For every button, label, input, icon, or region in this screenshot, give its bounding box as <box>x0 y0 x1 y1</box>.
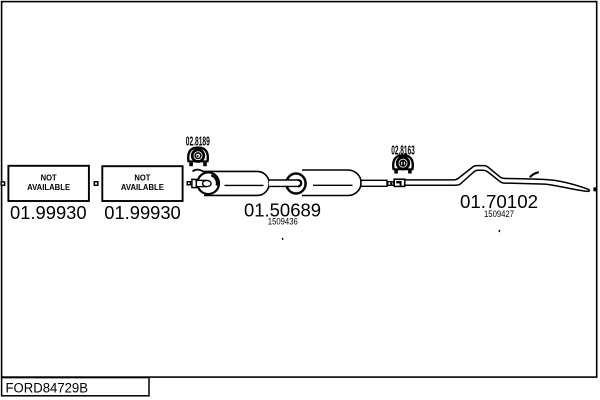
svg-text:1509427: 1509427 <box>484 209 514 219</box>
svg-text:02.8163: 02.8163 <box>391 142 415 157</box>
svg-text:AVAILABLE: AVAILABLE <box>27 182 70 192</box>
svg-text:1509436: 1509436 <box>268 217 298 227</box>
svg-text:FORD84729B: FORD84729B <box>6 380 89 395</box>
svg-text:01.99930: 01.99930 <box>104 202 181 223</box>
svg-text:AVAILABLE: AVAILABLE <box>121 182 164 192</box>
svg-text:02.8189: 02.8189 <box>186 134 210 149</box>
svg-text:01.99930: 01.99930 <box>10 202 87 223</box>
